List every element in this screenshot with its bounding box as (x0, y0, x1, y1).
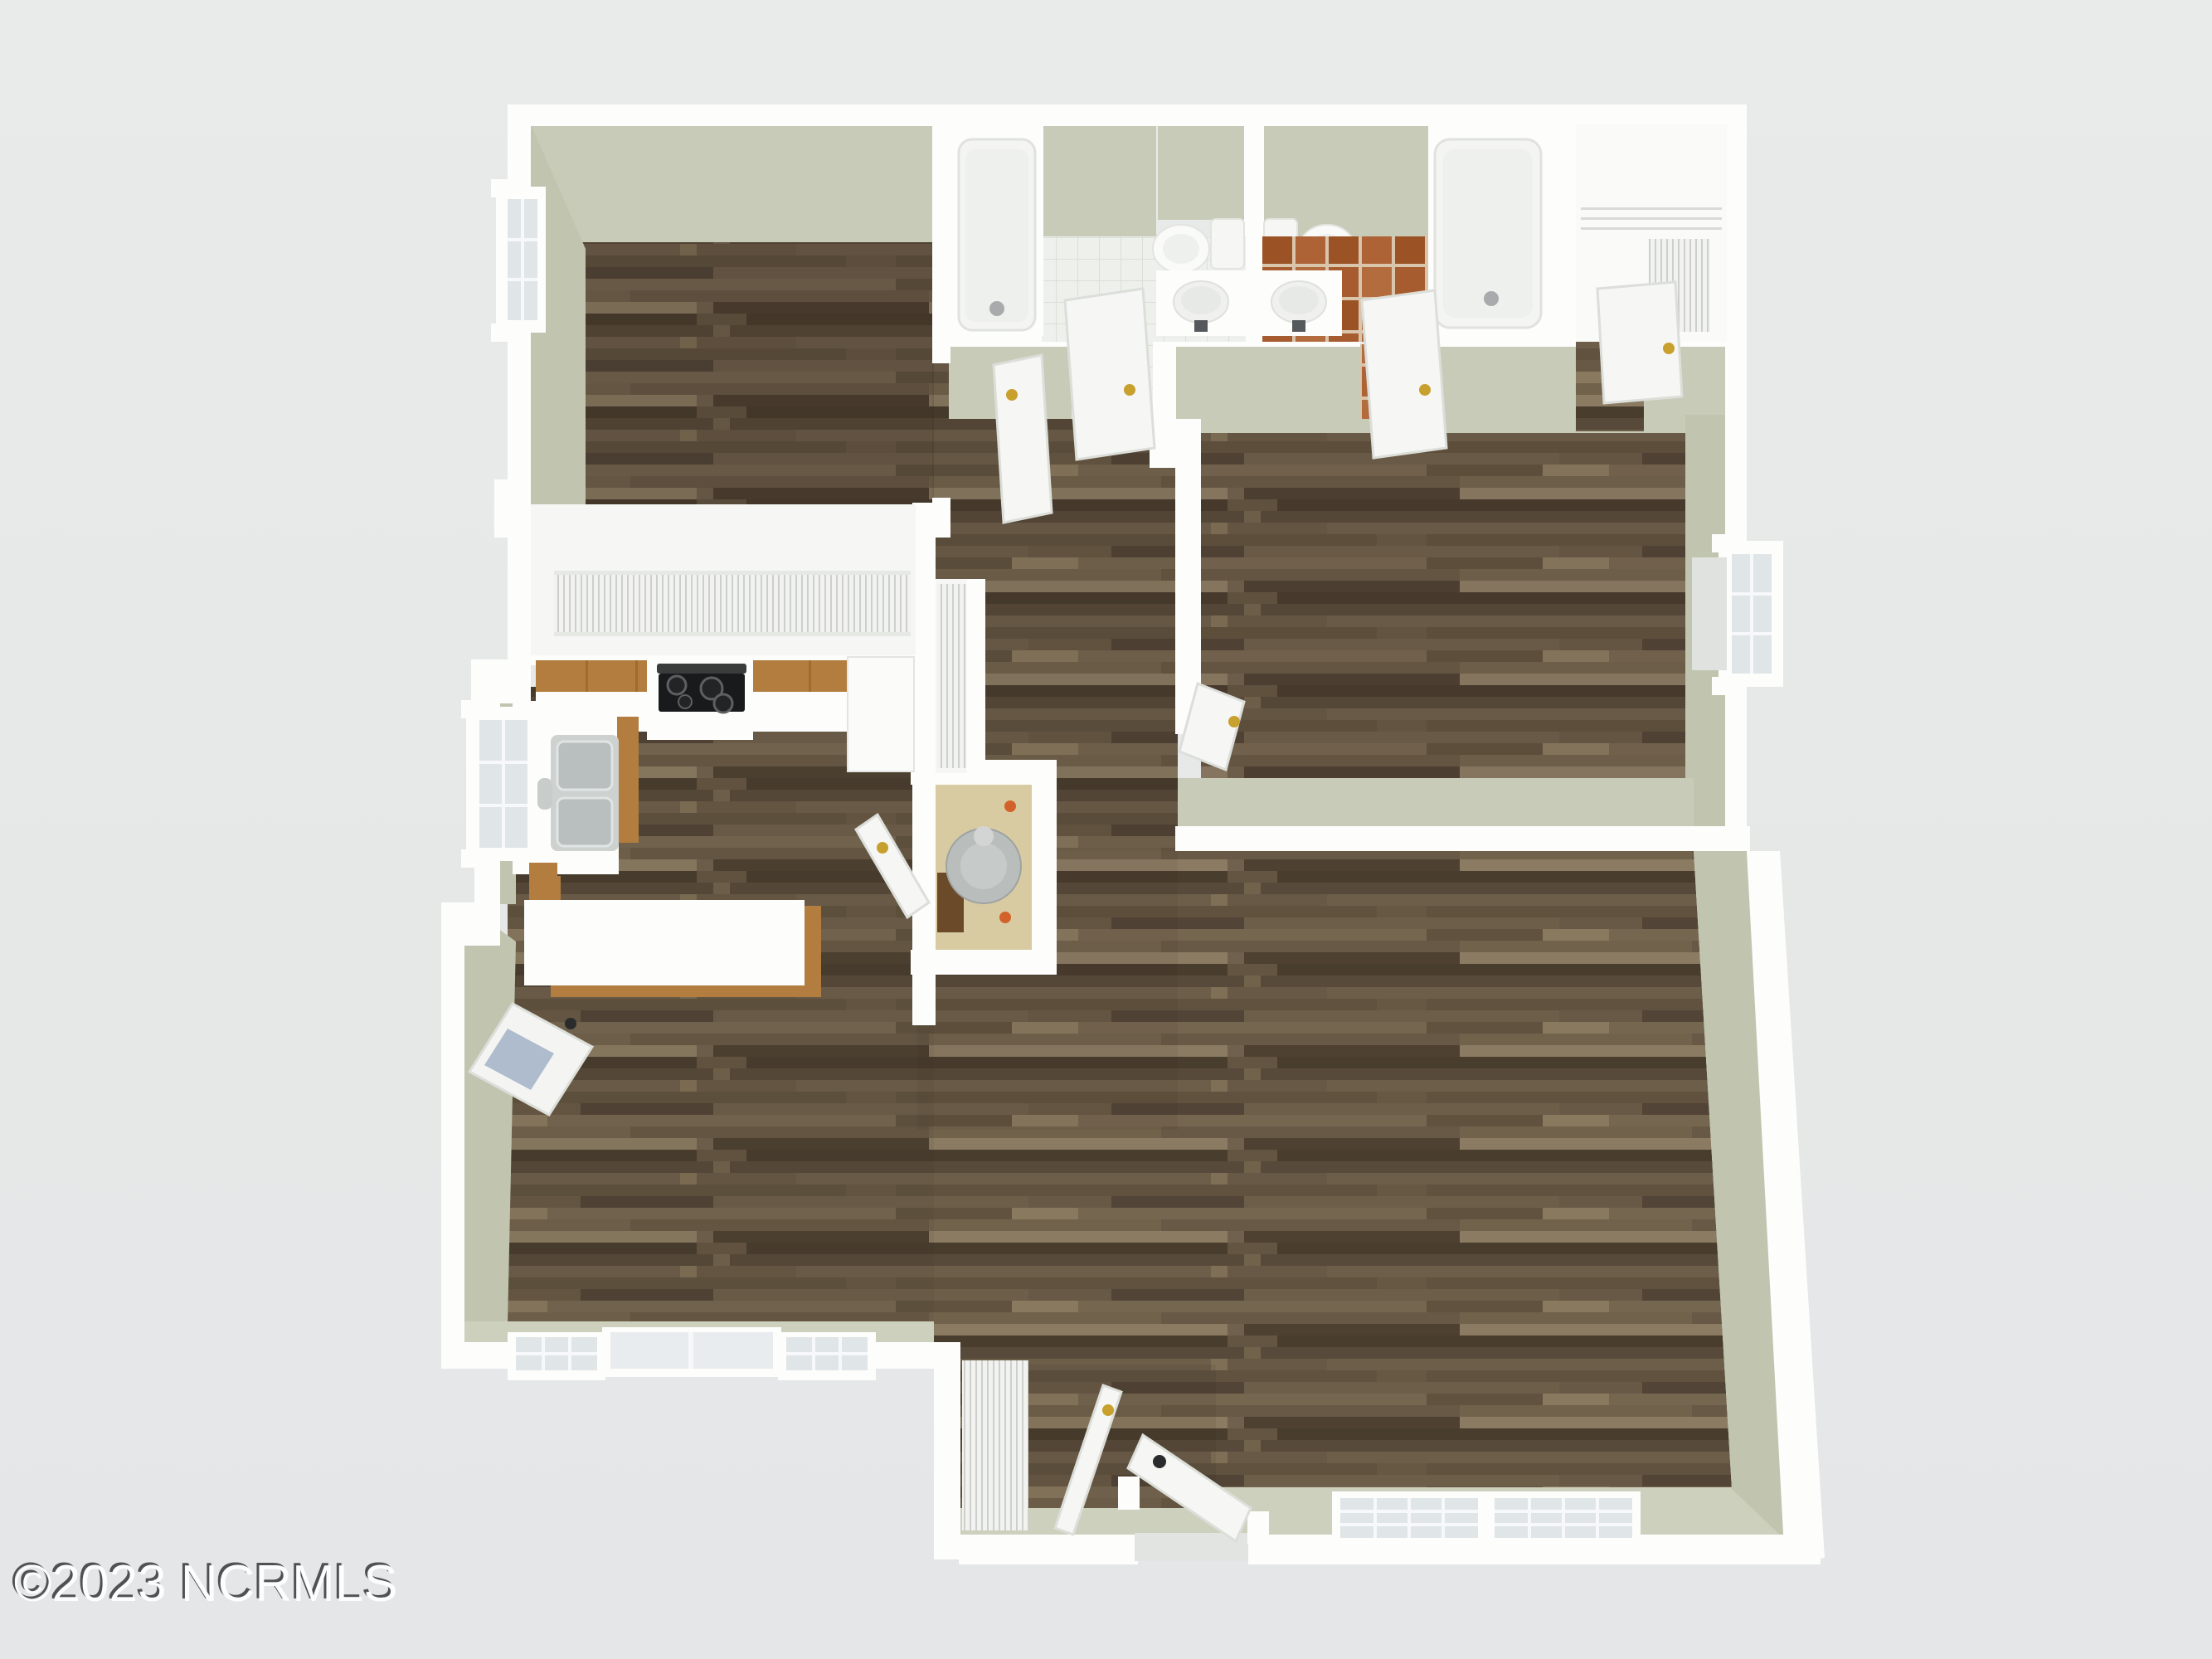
svg-text:©2023 NCRMLS: ©2023 NCRMLS (14, 1555, 398, 1613)
